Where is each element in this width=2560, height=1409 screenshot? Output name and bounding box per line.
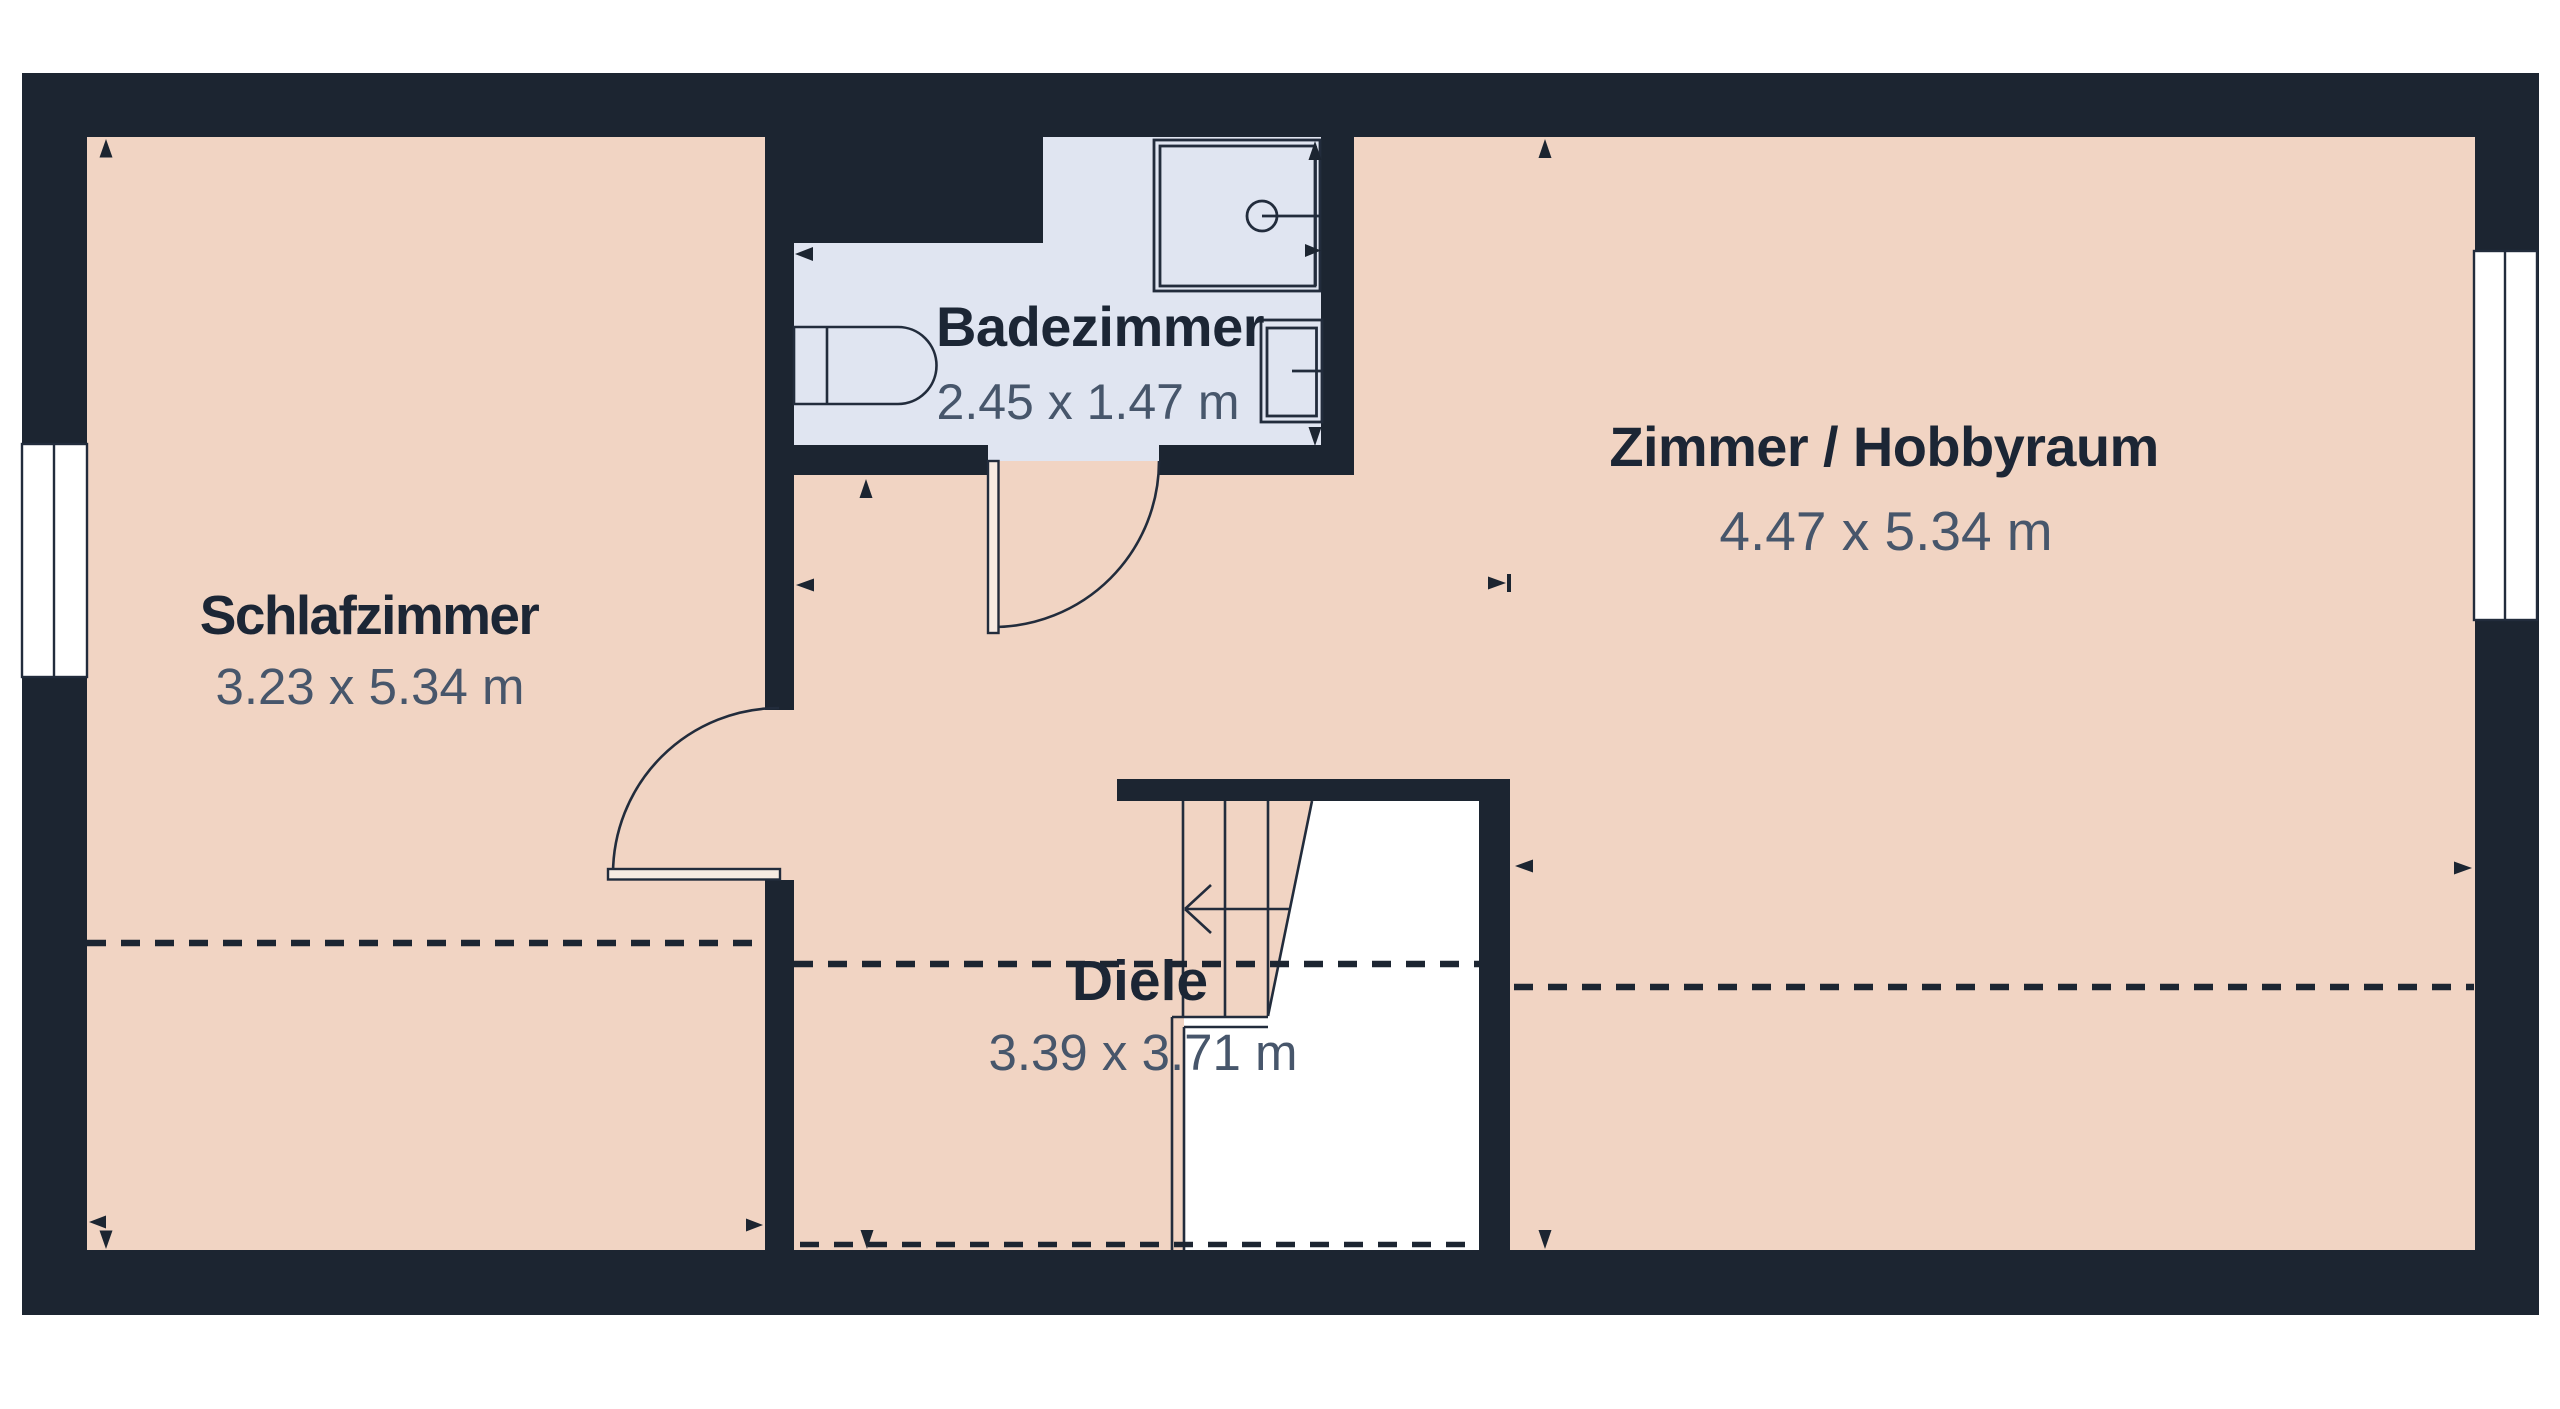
svg-text:4.47 x 5.34 m: 4.47 x 5.34 m [1719,500,2052,562]
svg-text:Schlafzimmer: Schlafzimmer [200,584,540,646]
svg-text:Diele: Diele [1072,949,1208,1013]
svg-text:Zimmer / Hobbyraum: Zimmer / Hobbyraum [1609,415,2158,478]
svg-text:3.23 x 5.34 m: 3.23 x 5.34 m [215,658,524,715]
svg-text:3.39 x 3.71 m: 3.39 x 3.71 m [988,1024,1297,1081]
svg-text:2.45 x 1.47 m: 2.45 x 1.47 m [937,374,1240,430]
svg-text:Badezimmer: Badezimmer [936,295,1264,358]
